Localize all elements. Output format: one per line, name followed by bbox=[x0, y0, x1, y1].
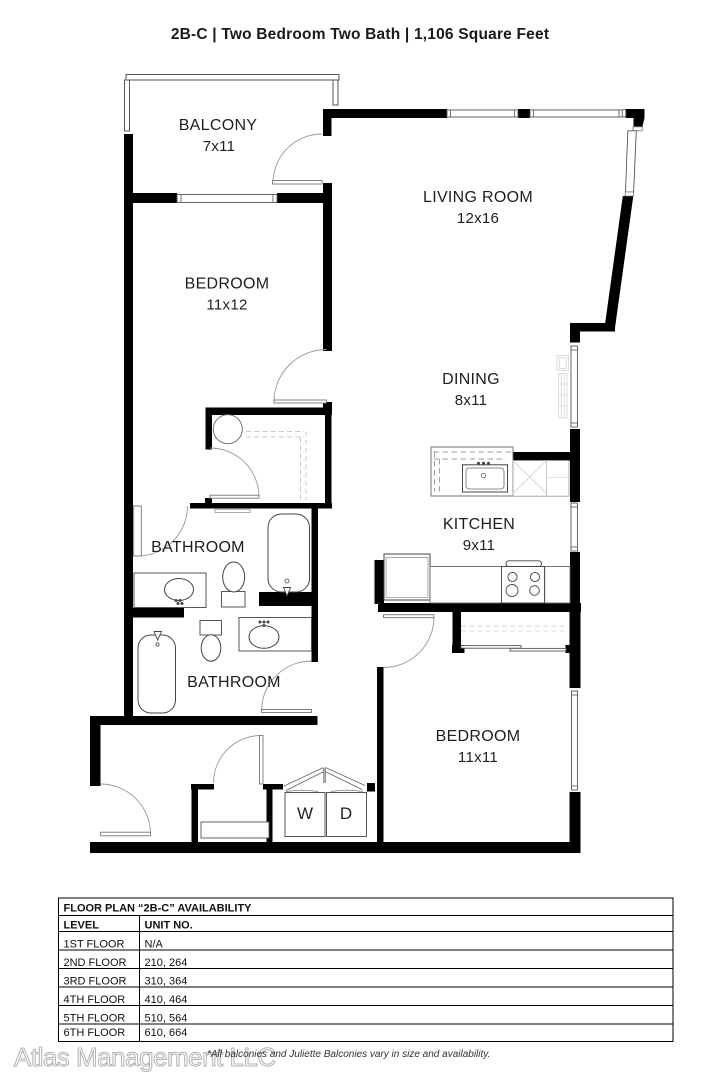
svg-text:1ST FLOOR: 1ST FLOOR bbox=[64, 939, 125, 951]
svg-text:6TH FLOOR: 6TH FLOOR bbox=[64, 1027, 126, 1039]
svg-text:LEVEL: LEVEL bbox=[64, 920, 100, 932]
svg-text:BATHROOM: BATHROOM bbox=[187, 674, 281, 691]
svg-text:9x11: 9x11 bbox=[463, 537, 496, 554]
svg-text:2B-C | Two Bedroom Two Bath |: 2B-C | Two Bedroom Two Bath | 1,106 Squa… bbox=[171, 26, 549, 43]
svg-text:LIVING ROOM: LIVING ROOM bbox=[423, 189, 533, 206]
svg-text:W: W bbox=[297, 804, 313, 823]
svg-text:BEDROOM: BEDROOM bbox=[436, 728, 521, 745]
svg-text:610, 664: 610, 664 bbox=[145, 1027, 188, 1039]
svg-text:410, 464: 410, 464 bbox=[145, 994, 188, 1006]
svg-text:KITCHEN: KITCHEN bbox=[443, 516, 515, 533]
svg-text:FLOOR PLAN “2B-C” AVAILABILITY: FLOOR PLAN “2B-C” AVAILABILITY bbox=[64, 903, 253, 915]
svg-text:11x12: 11x12 bbox=[206, 297, 247, 314]
svg-text:11x11: 11x11 bbox=[458, 749, 498, 766]
svg-text:12x16: 12x16 bbox=[457, 210, 499, 227]
svg-text:*All balconies and Juliette Ba: *All balconies and Juliette Balconies va… bbox=[207, 1049, 490, 1060]
svg-text:4TH FLOOR: 4TH FLOOR bbox=[64, 994, 126, 1006]
svg-text:5TH FLOOR: 5TH FLOOR bbox=[64, 1013, 126, 1025]
svg-text:510, 564: 510, 564 bbox=[145, 1013, 188, 1025]
svg-text:3RD FLOOR: 3RD FLOOR bbox=[64, 976, 127, 988]
svg-text:310, 364: 310, 364 bbox=[145, 976, 188, 988]
svg-text:N/A: N/A bbox=[145, 939, 164, 951]
svg-text:8x11: 8x11 bbox=[455, 392, 488, 409]
svg-text:210, 264: 210, 264 bbox=[145, 957, 188, 969]
svg-text:DINING: DINING bbox=[442, 371, 500, 388]
svg-text:UNIT NO.: UNIT NO. bbox=[145, 920, 193, 932]
svg-text:D: D bbox=[340, 804, 352, 823]
svg-text:BALCONY: BALCONY bbox=[179, 117, 258, 134]
svg-text:BEDROOM: BEDROOM bbox=[185, 276, 270, 293]
svg-text:7x11: 7x11 bbox=[203, 138, 236, 155]
svg-text:BATHROOM: BATHROOM bbox=[151, 539, 245, 556]
svg-text:2ND FLOOR: 2ND FLOOR bbox=[64, 957, 127, 969]
